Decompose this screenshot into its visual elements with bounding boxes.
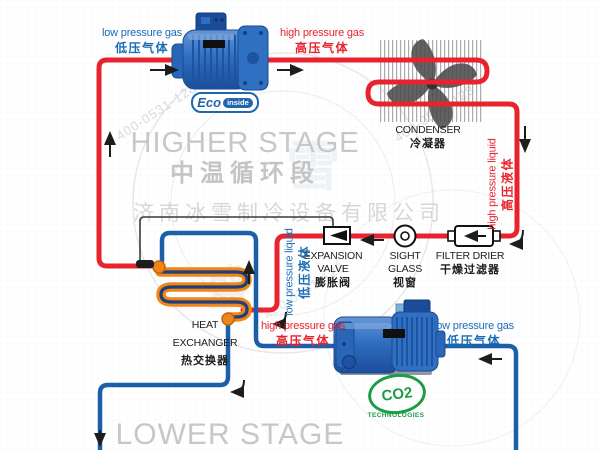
eco-inside-badge: Eco inside (191, 92, 259, 113)
co2-technologies-text: TECHNOLOGIES (368, 412, 425, 419)
label-heat-exchanger: HEAT EXCHANGER 热交换器 (173, 316, 238, 370)
label-higher-stage: HIGHER STAGE 中温循环段 (131, 128, 360, 188)
sight-glass-symbol (395, 226, 416, 247)
eco-inside-tag: inside (223, 98, 253, 108)
label-low-pressure-liquid: low pressure liquid 低压液体 (284, 212, 313, 332)
label-filter-drier: FILTER DRIER 干燥过滤器 (436, 250, 505, 278)
label-high-pressure-gas-lower: high pressure gas 高压气体 (261, 320, 345, 349)
label-low-pressure-gas-lower: low pressure gas 低压气体 (434, 320, 514, 349)
label-sight-glass: SIGHT GLASS 视窗 (388, 250, 422, 291)
label-low-pressure-gas-top: low pressure gas 低压气体 (102, 27, 182, 56)
label-condenser: CONDENSER 冷凝器 (395, 124, 460, 152)
label-high-pressure-gas-top: high pressure gas 高压气体 (280, 27, 364, 56)
diagram-canvas: 济南冰雪制冷设备有限公司 400-0531-128 400-0531-128 4… (0, 0, 600, 450)
flow-arrow-turn (233, 380, 244, 392)
label-high-pressure-liquid: high pressure liquid 高压液体 (487, 124, 516, 244)
expansion-valve-symbol (324, 227, 350, 244)
lower-stage-compressor (334, 300, 445, 375)
higher-stage-compressor (172, 13, 268, 90)
txv-sensing-bulb (136, 260, 154, 268)
label-lower-stage: LOWER STAGE (116, 418, 345, 450)
eco-logo: Eco (197, 96, 221, 109)
coil-fitting-top (153, 261, 165, 273)
